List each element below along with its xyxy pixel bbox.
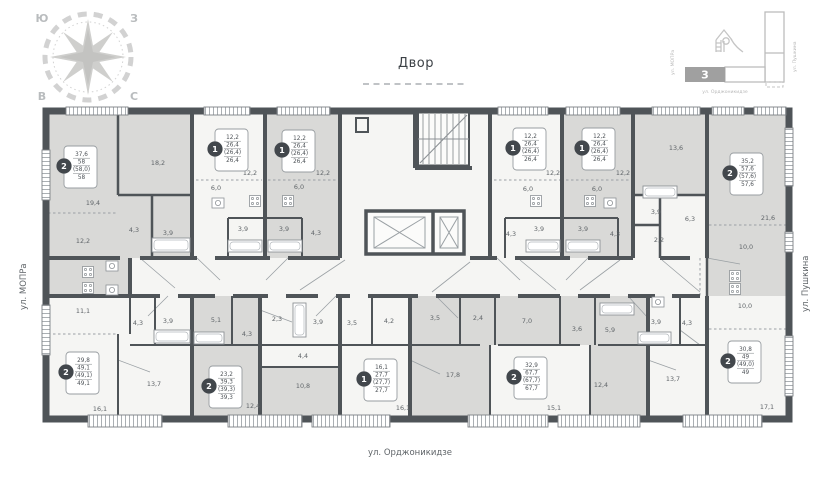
room-area-label: 12,2 [546, 169, 560, 177]
window-icon [785, 128, 793, 186]
minimap-street-right: ул. Пушкина [792, 41, 798, 72]
room-area-label: 5,1 [211, 316, 221, 324]
apartment-area-value: (57,6) [739, 174, 756, 180]
apartment-area-value: (26,4) [591, 149, 608, 155]
apartment-area-value: 27,7 [375, 373, 388, 379]
courtyard-label: Двор [398, 56, 434, 71]
window-icon [88, 415, 162, 427]
room-area-label: 13,7 [147, 380, 161, 388]
window-icon [712, 107, 744, 115]
window-icon [754, 107, 786, 115]
apartment-area-value: 26,4 [524, 157, 537, 163]
apartment-area-value: 32,9 [525, 363, 538, 369]
apartment-area-value: 67,7 [525, 386, 538, 392]
room-area-label: 3,9 [313, 318, 323, 326]
window-icon [312, 415, 390, 427]
apartment-area-value: 23,2 [220, 372, 233, 378]
room-area-label: 10,0 [739, 243, 753, 251]
stove-icon [730, 271, 741, 282]
apartment-area-value: (67,7) [523, 378, 540, 384]
room-area-label: 6,0 [523, 185, 533, 193]
room-area-label: 3,5 [347, 319, 357, 327]
room-area-label: 4,3 [610, 230, 620, 238]
apartment-area-value: 49,1 [77, 381, 90, 387]
room-area-label: 12,2 [76, 237, 90, 245]
apartment-type-number: 2 [727, 168, 733, 178]
room-area-label: 2,4 [473, 314, 483, 322]
apartment-area-value: 57,6 [741, 182, 754, 188]
room-area-label: 4,3 [682, 319, 692, 327]
apartment-type-number: 1 [279, 145, 285, 155]
sink-icon [106, 285, 118, 295]
apartment-area-value: 29,8 [77, 358, 90, 364]
apartment-type-number: 2 [61, 161, 67, 171]
window-icon [785, 336, 793, 396]
room-area-label: 4,4 [298, 352, 308, 360]
apartment-area-value: 30,8 [739, 347, 752, 353]
compass-label-ne: З [130, 12, 138, 25]
window-icon [204, 107, 250, 115]
bathtub-icon [194, 332, 224, 344]
room-area-label: 4,3 [129, 226, 139, 234]
apartment-area-value: 39,3 [220, 380, 233, 386]
room-area-label: 12,2 [316, 169, 330, 177]
room-area-label: 18,2 [151, 159, 165, 167]
sink-icon [212, 198, 224, 208]
apartment-area-value: 26,4 [524, 142, 537, 148]
stove-icon [585, 196, 596, 207]
apartment-area-value: 49 [742, 370, 750, 376]
apartment-area-value: (49,0) [737, 362, 754, 368]
room-area-label: 3,9 [578, 225, 588, 233]
room-area-label: 13,7 [666, 375, 680, 383]
room-area-label: 2,2 [654, 236, 664, 244]
courtyard-label-group: Двор [363, 56, 466, 84]
room-area-label: 12,2 [616, 169, 630, 177]
room-area-label: 3,9 [651, 208, 661, 216]
stove-icon [250, 196, 261, 207]
apartment-area-value: 57,6 [741, 167, 754, 173]
room-area-label: 6,3 [685, 215, 695, 223]
apartment-area-value: (39,3) [218, 387, 235, 393]
stove-icon [531, 196, 542, 207]
room-area-label: 6,0 [211, 184, 221, 192]
room-area-label: 12,4 [246, 402, 260, 410]
bathtub-icon [293, 303, 306, 337]
room-area-label: 3,9 [238, 225, 248, 233]
room-area-label: 4,3 [133, 319, 143, 327]
stove-icon [730, 284, 741, 295]
window-icon [498, 107, 548, 115]
street-label-left: ул. МОПРа [19, 263, 29, 310]
window-icon [228, 415, 302, 427]
stove-icon [283, 196, 294, 207]
minimap-building-dashed [766, 82, 783, 87]
sink-icon [106, 261, 118, 271]
room-area-label: 6,0 [592, 185, 602, 193]
room-area-label: 3,9 [651, 318, 661, 326]
compass-rose: Ю З В С [36, 12, 139, 103]
room-area-label: 3,5 [430, 314, 440, 322]
apartment-area-value: 39,3 [220, 395, 233, 401]
playground-icon [716, 30, 743, 52]
room-area-label: 16,1 [93, 405, 107, 413]
apartment-area-value: (26,4) [522, 149, 539, 155]
apartment-type-number: 1 [212, 144, 218, 154]
room-area-label: 4,3 [242, 330, 252, 338]
apartment-area-value: 16,1 [375, 365, 388, 371]
room-area-label: 19,4 [86, 199, 100, 207]
apartment-area-value: 12,2 [524, 134, 537, 140]
window-icon [42, 305, 50, 355]
window-icon [468, 415, 548, 427]
bathtub-icon [566, 240, 600, 252]
room-area-label: 21,6 [761, 214, 775, 222]
sink-icon [604, 198, 616, 208]
room-area-label: 10,8 [296, 382, 310, 390]
minimap-street-left: ул. МОПРа [670, 50, 676, 75]
room-area-label: 2,3 [272, 315, 282, 323]
room-area-label: 11,1 [76, 307, 90, 315]
bathtub-icon [643, 186, 677, 198]
room-area-label: 10,0 [738, 302, 752, 310]
window-icon [566, 107, 620, 115]
apartment-type-number: 2 [511, 372, 517, 382]
stove-icon [83, 267, 94, 278]
apartment-area-value: 58 [78, 160, 86, 166]
apartment-type-number: 2 [725, 356, 731, 366]
apartment-type-number: 2 [63, 367, 69, 377]
apartment-type-number: 2 [206, 381, 212, 391]
apartment-type-number: 1 [361, 374, 367, 384]
apartment-area-value: 12,2 [593, 134, 606, 140]
room-area-label: 4,3 [506, 230, 516, 238]
bathtub-icon [526, 240, 560, 252]
street-label-right: ул. Пушкина [801, 256, 811, 313]
window-icon [785, 232, 793, 252]
minimap-section-number: 3 [701, 69, 709, 82]
apartment-type-number: 1 [579, 143, 585, 153]
apartment-area-value: 12,2 [293, 136, 306, 142]
apartment-area-value: (26,4) [291, 151, 308, 157]
room-area-label: 3,6 [572, 325, 582, 333]
room-area-label: 15,1 [547, 404, 561, 412]
elevators [366, 211, 464, 254]
apartment-area-value: (49,1) [75, 373, 92, 379]
bathtub-icon [152, 238, 190, 252]
apartment-area-value: 12,2 [226, 135, 239, 141]
room-area-label: 3,9 [163, 229, 173, 237]
apartment-area-value: 49,1 [77, 366, 90, 372]
minimap-building-wing [765, 12, 784, 82]
apartment-area-value: 26,4 [293, 159, 306, 165]
window-icon [652, 107, 700, 115]
room-area-label: 4,2 [384, 317, 394, 325]
apartment-area-value: 49 [742, 355, 750, 361]
room-area-label: 12,4 [594, 381, 608, 389]
window-icon [558, 415, 640, 427]
bathtub-icon [600, 303, 634, 315]
window-icon [277, 107, 330, 115]
bathtub-icon [638, 332, 671, 344]
apartment-area-value: (26,4) [224, 150, 241, 156]
room-area-label: 3,9 [279, 225, 289, 233]
room-area-label: 3,9 [534, 225, 544, 233]
minimap-street-bottom: ул. Орджоникидзе [702, 89, 748, 95]
street-label-bottom: ул. Орджоникидзе [368, 448, 452, 458]
window-icon [66, 107, 128, 115]
apartment-area-value: 35,2 [741, 159, 754, 165]
room-area-label: 4,3 [311, 229, 321, 237]
minimap-section-other [725, 67, 765, 82]
apartment-area-value: 58 [78, 175, 86, 181]
room-area-label: 7,0 [522, 317, 532, 325]
apartment-area-value: 26,4 [593, 157, 606, 163]
window-icon [42, 150, 50, 200]
room-area-label: 17,8 [446, 371, 460, 379]
staircase [418, 113, 469, 166]
room-area-label: 17,1 [760, 403, 774, 411]
floor-plan-page: Ю З В С Двор 3 ул. МОПРа ул. Пушкина ул.… [0, 0, 827, 479]
sink-icon [652, 297, 664, 307]
apartment-area-value: (58,0) [73, 167, 90, 173]
apartment-area-value: 37,6 [75, 152, 88, 158]
compass-label-nw: Ю [36, 12, 49, 25]
room-area-label: 6,0 [294, 183, 304, 191]
apartment-area-value: 67,7 [525, 371, 538, 377]
bathtub-icon [268, 240, 302, 252]
room-area-label: 3,9 [163, 317, 173, 325]
compass-label-se: С [130, 90, 138, 103]
apartment-area-value: 27,7 [375, 388, 388, 394]
apartment-area-value: 26,4 [593, 142, 606, 148]
stove-icon [83, 283, 94, 294]
apartment-area-value: 26,4 [226, 143, 239, 149]
apartment-area-value: 26,4 [293, 144, 306, 150]
room-area-label: 16,1 [396, 404, 410, 412]
room-area-label: 13,6 [669, 144, 683, 152]
window-icon [683, 415, 762, 427]
compass-label-sw: В [38, 90, 46, 103]
bathtub-icon [228, 240, 262, 252]
room-area-label: 5,9 [605, 326, 615, 334]
bathtub-icon [154, 330, 190, 343]
apartment-area-value: 26,4 [226, 158, 239, 164]
apartment-type-number: 1 [510, 143, 516, 153]
location-minimap: 3 ул. МОПРа ул. Пушкина ул. Орджоникидзе [670, 12, 798, 95]
apartment-area-value: (27,7) [373, 380, 390, 386]
floor-plan: 19,412,218,24,33,912,26,03,912,26,03,94,… [42, 107, 793, 427]
